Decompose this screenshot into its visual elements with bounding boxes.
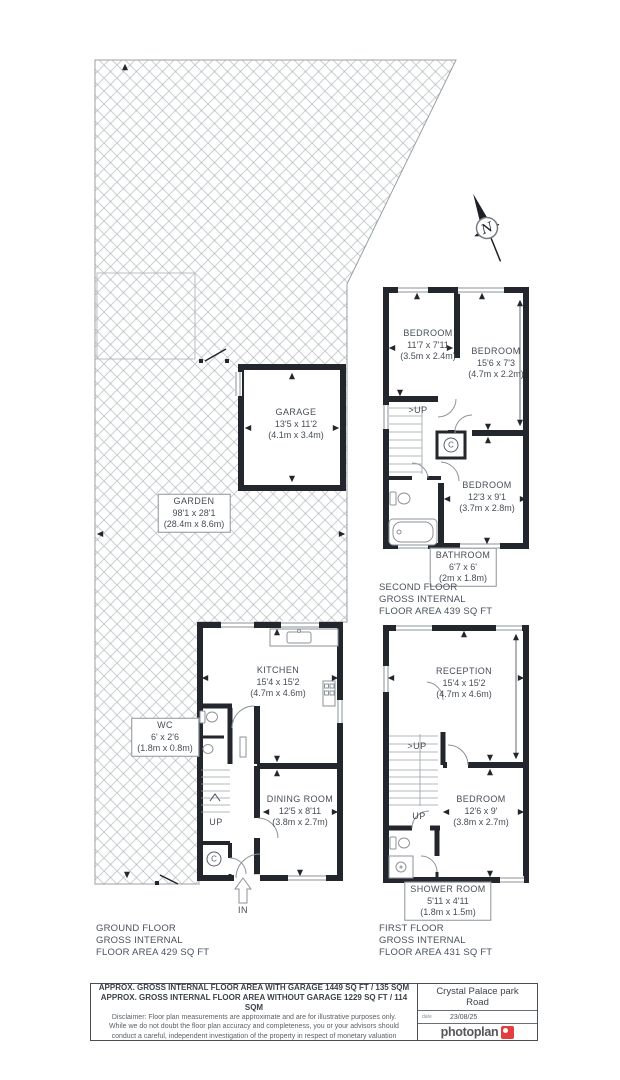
floor-caption-first: FIRST FLOOR GROSS INTERNAL FLOOR AREA 43… xyxy=(379,923,492,959)
room-label-shower-room: SHOWER ROOM 5'11 x 4'11 (1.8m x 1.5m) xyxy=(404,882,491,921)
entrance-in-label: IN xyxy=(238,905,248,915)
floor-caption-ground: GROUND FLOOR GROSS INTERNAL FLOOR AREA 4… xyxy=(96,923,209,959)
compass-north: N xyxy=(459,189,512,267)
disclaimer-line-2: While we do not doubt the floor plan acc… xyxy=(95,1022,413,1032)
floorplan-graphics: N xyxy=(0,0,620,1080)
brand-logo: photoplan xyxy=(418,1024,537,1040)
property-address: Crystal Palace park Road xyxy=(418,984,537,1011)
room-label-bedroom-1: BEDROOM 11'7 x 7'11 (3.5m x 2.4m) xyxy=(400,328,456,363)
room-label-garden: GARDEN 98'1 x 28'1 (28.4m x 8.6m) xyxy=(158,494,231,533)
stairs-up-label-second: >UP xyxy=(408,405,427,415)
disclaimer-line-3: conduct a careful, independent investiga… xyxy=(95,1032,413,1042)
cupboard-label-ground: C xyxy=(207,852,222,867)
cupboard-label-second: C xyxy=(444,438,459,453)
room-label-garage: GARAGE 13'5 x 11'2 (4.1m x 3.4m) xyxy=(268,407,324,442)
stairs-up-label-first-lower: UP xyxy=(412,811,426,821)
room-label-bathroom: BATHROOM 6'7 x 6' (2m x 1.8m) xyxy=(430,548,497,587)
floorplan-page: N xyxy=(0,0,620,1080)
area-with-garage: APPROX. GROSS INTERNAL FLOOR AREA WITH G… xyxy=(95,983,413,993)
footer-info-bar: APPROX. GROSS INTERNAL FLOOR AREA WITH G… xyxy=(90,983,538,1041)
room-label-bedroom-3: BEDROOM 12'3 x 9'1 (3.7m x 2.8m) xyxy=(459,480,515,515)
footer-area-summary: APPROX. GROSS INTERNAL FLOOR AREA WITH G… xyxy=(91,984,417,1040)
disclaimer-line-1: Disclaimer: Floor plan measurements are … xyxy=(95,1013,413,1023)
room-label-wc: WC 6' x 2'6 (1.8m x 0.8m) xyxy=(131,718,199,757)
room-label-bedroom-first: BEDROOM 12'6 x 9' (3.8m x 2.7m) xyxy=(453,794,509,829)
brand-wordmark: photoplan xyxy=(441,1025,499,1039)
date-label: date xyxy=(418,1014,450,1020)
stairs-up-label-ground: UP xyxy=(209,817,223,827)
date-row: date 23/08/25 xyxy=(418,1011,537,1024)
footer-property-card: Crystal Palace park Road date 23/08/25 p… xyxy=(417,984,537,1040)
stairs-up-label-first-upper: >UP xyxy=(407,741,426,751)
photoplan-camera-icon xyxy=(501,1026,514,1039)
room-label-kitchen: KITCHEN 15'4 x 15'2 (4.7m x 4.6m) xyxy=(250,665,306,700)
room-label-dining: DINING ROOM 12'5 x 8'11 (3.8m x 2.7m) xyxy=(267,794,333,829)
first-floor-plan xyxy=(382,624,529,884)
room-label-reception: RECEPTION 15'4 x 15'2 (4.7m x 4.6m) xyxy=(436,666,492,701)
area-without-garage: APPROX. GROSS INTERNAL FLOOR AREA WITHOU… xyxy=(95,993,413,1013)
floor-caption-second: SECOND FLOOR GROSS INTERNAL FLOOR AREA 4… xyxy=(379,582,492,618)
date-value: 23/08/25 xyxy=(450,1014,477,1021)
room-label-bedroom-2: BEDROOM 15'6 x 7'3 (4.7m x 2.2m) xyxy=(468,346,524,381)
